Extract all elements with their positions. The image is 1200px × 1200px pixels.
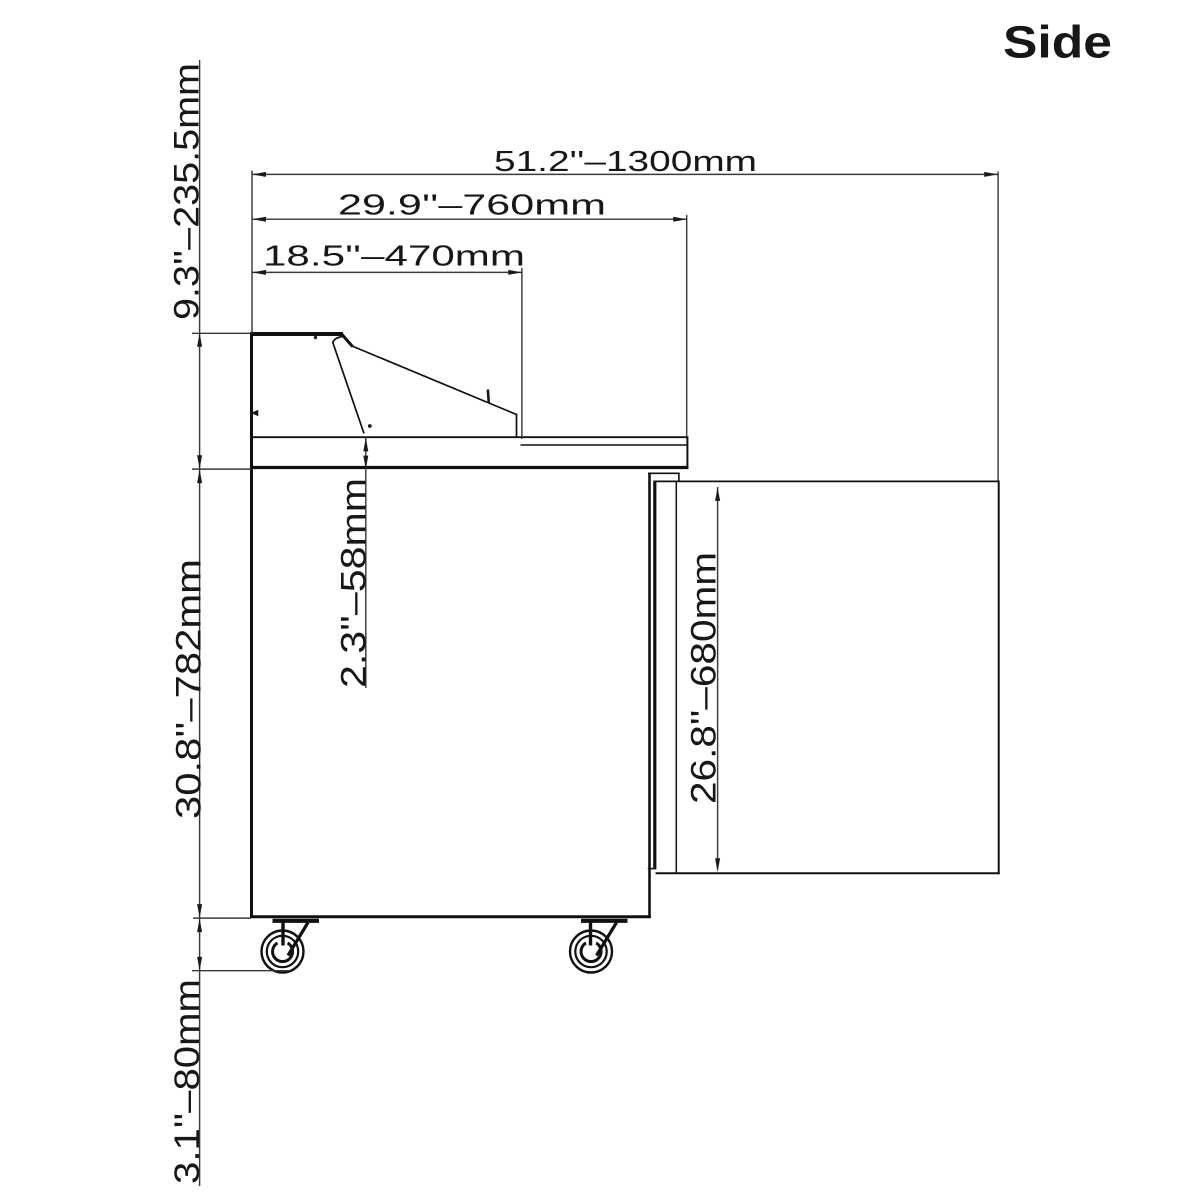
svg-text:9.3''–235.5mm: 9.3''–235.5mm	[168, 63, 207, 320]
svg-text:51.2''–1300mm: 51.2''–1300mm	[494, 146, 757, 178]
svg-text:18.5''–470mm: 18.5''–470mm	[263, 241, 525, 273]
svg-text:Side: Side	[1003, 17, 1112, 68]
svg-text:29.9''–760mm: 29.9''–760mm	[338, 190, 606, 222]
svg-text:30.8''–782mm: 30.8''–782mm	[170, 559, 209, 819]
svg-text:3.1''–80mm: 3.1''–80mm	[168, 979, 207, 1184]
svg-text:26.8''–680mm: 26.8''–680mm	[685, 552, 724, 804]
svg-text:2.3''–58mm: 2.3''–58mm	[334, 478, 373, 688]
